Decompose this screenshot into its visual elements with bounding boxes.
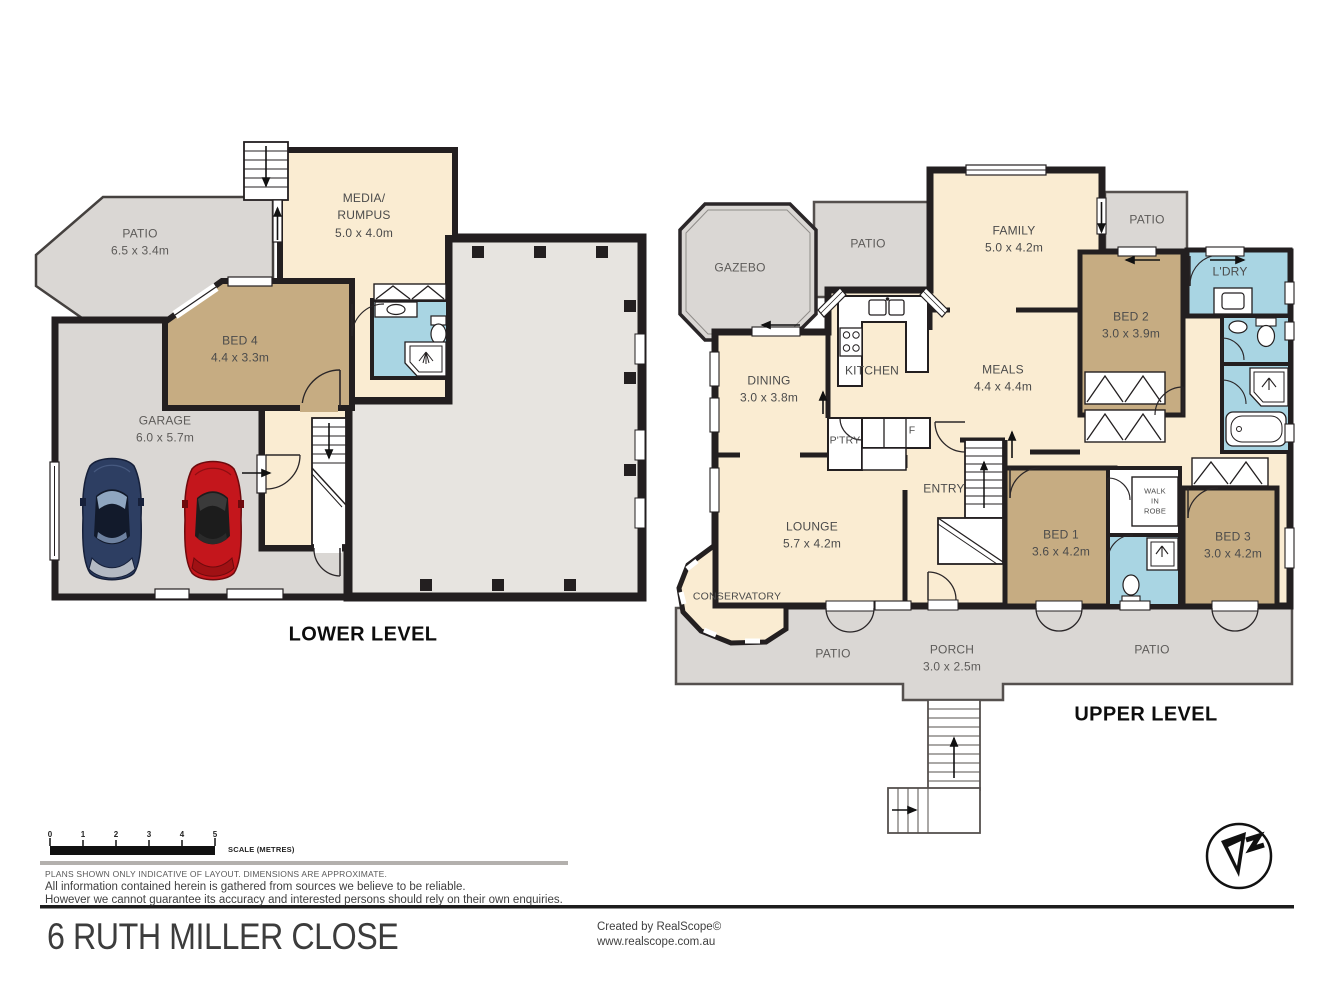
toilet-icon	[1122, 575, 1140, 603]
room-label-patio-sw: PATIO	[815, 645, 850, 662]
property-address: 6 RUTH MILLER CLOSE	[47, 916, 451, 958]
label-fridge: F	[909, 423, 916, 438]
floorplan-drawing	[0, 0, 1334, 1000]
basin-icon	[1229, 321, 1247, 333]
toilet-icon	[431, 316, 446, 344]
room-label-patio-se: PATIO	[1134, 641, 1169, 658]
realscope-logo	[1207, 824, 1271, 888]
room-label-family: FAMILY5.0 x 4.2m	[985, 223, 1043, 258]
room-label-entry: ENTRY	[923, 480, 964, 497]
shower-icon	[1250, 368, 1288, 406]
room-label-media-rumpus: MEDIA/RUMPUS5.0 x 4.0m	[335, 190, 393, 242]
room-label-patio-top: PATIO	[850, 235, 885, 252]
room-label-porch: PORCH3.0 x 2.5m	[923, 642, 981, 677]
room-label-lounge: LOUNGE5.7 x 4.2m	[783, 519, 841, 554]
toilet-icon	[1256, 318, 1276, 347]
floorplan-page: PATIO6.5 x 3.4m MEDIA/RUMPUS5.0 x 4.0m B…	[0, 0, 1334, 1000]
note-disclaimer-1: All information contained herein is gath…	[45, 881, 466, 895]
lower-entry-stairs	[244, 142, 288, 200]
note-indicative: PLANS SHOWN ONLY INDICATIVE OF LAYOUT. D…	[45, 869, 387, 879]
scale-tick-4: 4	[180, 830, 184, 839]
note-disclaimer-2: However we cannot guarantee its accuracy…	[45, 894, 563, 908]
scale-bar	[40, 838, 568, 865]
scale-tick-1: 1	[81, 830, 85, 839]
scale-tick-3: 3	[147, 830, 151, 839]
room-label-conservatory: CONSERVATORY	[693, 589, 781, 604]
car-red	[182, 462, 244, 580]
shower-icon	[1147, 538, 1178, 570]
laundry-tub-icon	[1214, 288, 1252, 314]
room-label-lower-patio: PATIO6.5 x 3.4m	[111, 226, 169, 261]
porch-steps	[888, 700, 980, 833]
ensuite-room	[1108, 535, 1180, 606]
sink-icon	[869, 297, 904, 315]
scale-tick-5: 5	[213, 830, 217, 839]
media-patio-door	[273, 200, 282, 242]
upper-level-plan	[676, 165, 1294, 833]
credits: Created by RealScope© www.realscope.com.…	[597, 920, 721, 950]
scale-tick-2: 2	[114, 830, 118, 839]
bed2-room	[1080, 252, 1183, 442]
room-label-meals: MEALS4.4 x 4.4m	[974, 362, 1032, 397]
scale-caption: SCALE (METRES)	[228, 845, 295, 854]
upper-level-title: UPPER LEVEL	[1074, 701, 1217, 730]
room-label-laundry: L'DRY	[1212, 263, 1247, 280]
car-blue	[80, 459, 144, 580]
lower-internal-stairs	[312, 418, 346, 545]
room-label-dining: DINING3.0 x 3.8m	[740, 373, 798, 408]
bathtub-icon	[1226, 412, 1286, 446]
room-label-garage: GARAGE6.0 x 5.7m	[136, 413, 194, 448]
room-label-walk-in-robe: WALKINROBE	[1144, 486, 1166, 515]
room-label-gazebo: GAZEBO	[714, 259, 765, 276]
room-label-bed3: BED 33.0 x 4.2m	[1204, 529, 1262, 564]
bathroom-room	[1222, 364, 1290, 452]
room-label-patio-ne: PATIO	[1129, 211, 1164, 228]
cooktop-icon	[840, 328, 862, 356]
lower-bathroom	[372, 284, 448, 378]
room-label-kitchen: KITCHEN	[845, 362, 899, 379]
room-label-bed1: BED 13.6 x 4.2m	[1032, 527, 1090, 562]
scale-tick-0: 0	[48, 830, 52, 839]
wc-room	[1222, 316, 1290, 364]
room-label-pantry: P'TRY	[830, 433, 861, 448]
lower-level-title: LOWER LEVEL	[289, 621, 438, 650]
room-label-bed4: BED 44.4 x 3.3m	[211, 333, 269, 368]
room-label-bed2: BED 23.0 x 3.9m	[1102, 309, 1160, 344]
